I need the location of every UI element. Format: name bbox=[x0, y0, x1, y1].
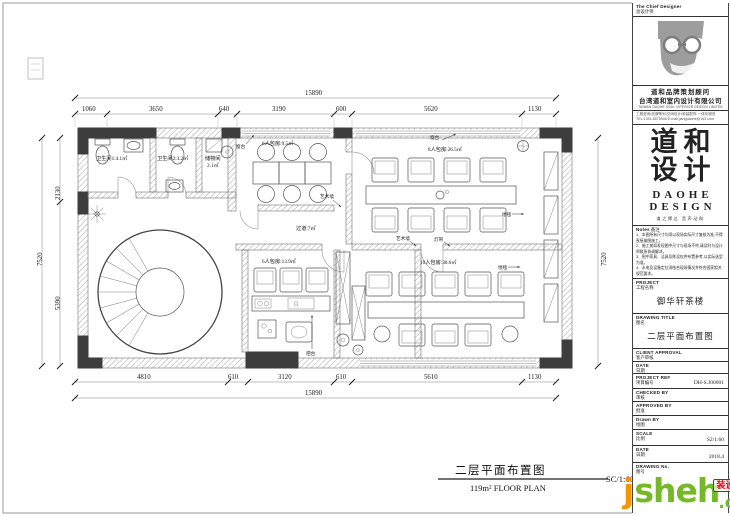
dim-bot-5: 1130 bbox=[528, 374, 542, 381]
callout-bar: 吧台 bbox=[306, 350, 316, 357]
sheet-edge-mark bbox=[28, 58, 43, 79]
sheet-frame bbox=[3, 3, 632, 513]
brand-en-2: DESIGN bbox=[633, 201, 728, 213]
callout-sill-2: 窗台 bbox=[430, 134, 440, 141]
dim-bot-2: 3120 bbox=[278, 374, 292, 381]
plan-title-sub: 119m² FLOOR PLAN bbox=[470, 483, 546, 493]
chief-designer-label-cn: 总设计师 bbox=[636, 9, 725, 15]
drawing-title-value: 二层平面布置图 bbox=[636, 326, 725, 347]
dim-top-5: 5620 bbox=[424, 106, 438, 113]
dim-top-0: 1060 bbox=[82, 106, 96, 113]
company-name-en: TAIWAN DAOHE SOUL INTERIOR DESIGN LIMITE… bbox=[636, 105, 725, 109]
approved-by-label-cn: 批准 bbox=[636, 408, 725, 414]
label-room10: 10人包房:30.6㎡ bbox=[420, 258, 457, 266]
company-section: 道和品牌策划顾问 台湾道和室内设计有限公司 TAIWAN DAOHE SOUL … bbox=[633, 86, 728, 111]
dim-top-6: 1130 bbox=[528, 106, 542, 113]
label-store: 储物间 bbox=[205, 154, 221, 162]
brand-characters-row1: 道和 bbox=[633, 129, 728, 157]
dim-right-total: 7520 bbox=[601, 252, 608, 266]
brand-section: 道和 设计 DAOHE DESIGN 道之博达 音声动和 bbox=[633, 125, 728, 227]
watermark-stamp: 装设汇 bbox=[713, 479, 730, 492]
label-store-area: 2.1㎡ bbox=[207, 161, 219, 169]
chief-designer-section: The Chief Designer 总设计师 bbox=[633, 3, 728, 17]
scale-value: S2/1:60 bbox=[707, 437, 724, 443]
project-ref-section: PROJECT REF 项目编号 DH-S.J00001 bbox=[633, 374, 728, 389]
company-name-cn1: 道和品牌策划顾问 bbox=[636, 87, 725, 96]
dimensions-right: 7520 bbox=[595, 135, 608, 369]
round-staircase bbox=[98, 230, 222, 354]
watermark-com: .com bbox=[718, 493, 730, 513]
brand-en-1: DAOHE bbox=[633, 189, 728, 201]
label-room6b: 6人包房:13.9㎡ bbox=[262, 257, 297, 265]
dim-top-4: 600 bbox=[336, 106, 347, 113]
dimensions-left: 2130 5390 7520 bbox=[37, 135, 63, 369]
label-corridor: 过道:7㎡ bbox=[296, 224, 316, 232]
project-name: 御华轩茶楼 bbox=[636, 291, 725, 312]
callout-lightband: 灯带 bbox=[434, 236, 444, 243]
dim-bot-0: 4810 bbox=[137, 374, 151, 381]
brand-characters-row2: 设计 bbox=[633, 157, 728, 185]
drawn-by-label-cn: 绘图 bbox=[636, 422, 725, 428]
title-block: The Chief Designer 总设计师 道和品牌策划顾问 台湾道和室内设… bbox=[632, 3, 729, 513]
watermark-letters: sheh bbox=[634, 471, 719, 510]
callout-artwall-1: 艺术墙 bbox=[320, 193, 334, 200]
approved-by-section: APPROVED BY 批准 bbox=[633, 402, 728, 416]
date2-value: 2018.4 bbox=[709, 454, 724, 460]
dim-bot-3: 610 bbox=[336, 374, 347, 381]
checked-by-label-cn: 审核 bbox=[636, 395, 725, 401]
plan-title-cn: 二层平面布置图 bbox=[455, 464, 546, 477]
scale-section: SCALE 比例 S2/1:60 bbox=[633, 430, 728, 446]
dim-left-0: 2130 bbox=[55, 186, 62, 200]
dim-top-1: 3650 bbox=[149, 106, 163, 113]
company-contact-line: TEL:1391-8575508 E-mail:jiangdaohe@163.c… bbox=[636, 117, 725, 122]
label-room6a: 6人包房:9.5㎡ bbox=[262, 139, 294, 147]
dim-bot-4: 5610 bbox=[424, 374, 438, 381]
company-name-cn2: 台湾道和室内设计有限公司 bbox=[636, 96, 725, 105]
checked-by-section: CHECKED BY 审核 bbox=[633, 389, 728, 402]
chief-designer-logo-section bbox=[633, 17, 728, 86]
plan-title: 二层平面布置图 119m² FLOOR PLAN SC/1:60 bbox=[438, 464, 632, 493]
note-3: 3、图中家具、洁具及陈设仅供布置参考,以实际选型为准。 bbox=[636, 255, 725, 266]
room6b-furniture bbox=[252, 268, 330, 342]
note-1: 1、本图所有尺寸均须以现场实际尺寸复核为准,不得直接量图施工。 bbox=[636, 233, 725, 244]
dim-bot-1: 610 bbox=[228, 374, 239, 381]
drawn-by-section: Drawn BY 绘图 bbox=[633, 416, 728, 430]
project-ref-value: DH-S.J00001 bbox=[694, 380, 724, 386]
notes-section: Notes 备注 1、本图所有尺寸均须以现场实际尺寸复核为准,不得直接量图施工。… bbox=[633, 226, 728, 279]
floor-plan-drawing: 15890 1060 3650 640 3190 600 5620 1130 4… bbox=[0, 0, 632, 516]
callout-carpet-2: 地毯 bbox=[498, 264, 508, 270]
room8-furniture bbox=[366, 141, 529, 233]
client-approval-section: CLIENT APPROVAL 客户审核 bbox=[633, 349, 728, 362]
callout-carpet-1: 地毯 bbox=[502, 211, 512, 217]
label-bath1: 卫生间1:4.1㎡ bbox=[96, 154, 128, 162]
dim-left-total: 7520 bbox=[37, 252, 44, 266]
chief-designer-logo bbox=[650, 19, 712, 83]
company-contact-section: 工程咨询/品牌策划/空间设计/软装配饰 一体化服务 TEL:1391-85755… bbox=[633, 111, 728, 125]
notes-label-cn: 备注 bbox=[651, 227, 660, 232]
drawing-sheet: 15890 1060 3650 640 3190 600 5620 1130 4… bbox=[0, 0, 730, 516]
date-section-1: DATE 日期 bbox=[633, 362, 728, 374]
watermark: jsheh装设汇.com bbox=[623, 474, 730, 512]
dim-top-total: 15890 bbox=[305, 90, 323, 97]
drawing-title-section: DRAWING TITLE 图名 二层平面布置图 bbox=[633, 314, 728, 349]
right-cabinets bbox=[544, 152, 558, 322]
callout-artwall-2: 艺术墙 bbox=[396, 235, 410, 242]
dim-bot-total: 15890 bbox=[305, 390, 323, 397]
dim-top-2: 640 bbox=[219, 106, 230, 113]
note-4: 4、水电及设备定位须结合现场情况并符合国家相关规范要求。 bbox=[636, 266, 725, 277]
dim-top-3: 3190 bbox=[272, 106, 286, 113]
brand-tagline: 道之博达 音声动和 bbox=[633, 216, 728, 222]
plant-icon bbox=[88, 205, 106, 223]
client-approval-label-cn: 客户审核 bbox=[636, 355, 725, 361]
note-2: 2、施工前如发现图中尺寸与现场不符,请及时与设计师联系协调解决。 bbox=[636, 244, 725, 255]
room10-furniture bbox=[366, 272, 524, 346]
service-shafts bbox=[336, 252, 365, 355]
dimensions-top: 15890 1060 3650 640 3190 600 5620 1130 bbox=[72, 90, 559, 127]
label-room8: 8人包房:26.5㎡ bbox=[428, 145, 463, 153]
notes-label-en: Notes bbox=[636, 227, 650, 232]
dimensions-bottom: 4810 610 3120 610 5610 1130 15890 bbox=[72, 374, 559, 401]
project-section: PROJECT 工程名称 御华轩茶楼 bbox=[633, 279, 728, 314]
watermark-letter-j: j bbox=[623, 471, 634, 510]
date-section-2: DATE 日期 2018.4 bbox=[633, 446, 728, 463]
callout-sill-1: 窗台 bbox=[236, 143, 246, 150]
label-bath2: 卫生间2:3.2㎡ bbox=[157, 154, 189, 162]
dim-left-1: 5390 bbox=[55, 296, 62, 310]
